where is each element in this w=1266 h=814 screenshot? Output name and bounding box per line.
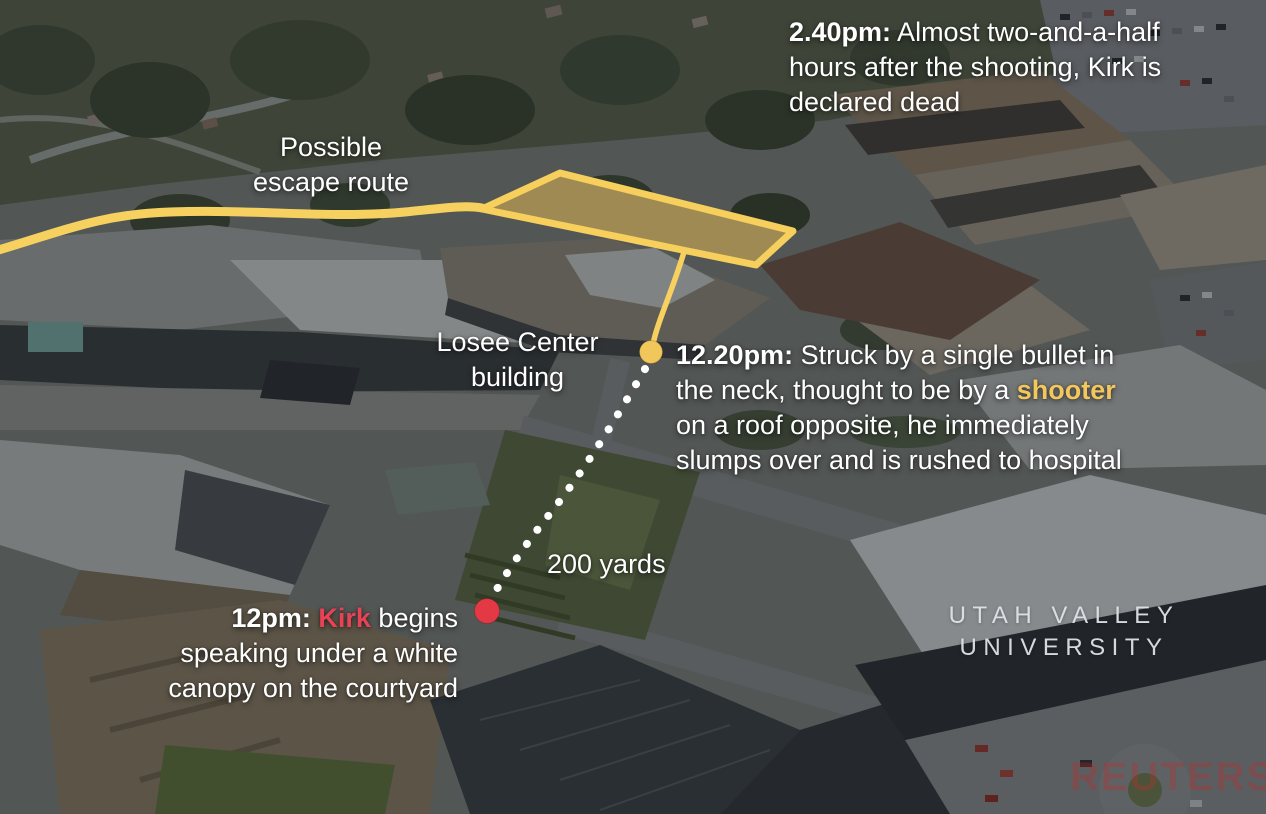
note-line: hours after the shooting, Kirk is (789, 50, 1239, 85)
label-line: building (395, 360, 640, 395)
event-shooting-note: 12.20pm: Struck by a single bullet in th… (676, 338, 1186, 478)
kirk-position-marker (475, 599, 500, 624)
label-line: UNIVERSITY (930, 632, 1198, 664)
annotated-aerial-map: 2.40pm: Almost two-and-a-half hours afte… (0, 0, 1266, 814)
note-line: speaking under a white (100, 636, 458, 671)
shooter-highlight-text: shooter (1017, 375, 1116, 405)
label-line: UTAH VALLEY (930, 600, 1198, 632)
note-line: 12.20pm: Struck by a single bullet in (676, 338, 1186, 373)
note-line: 12pm: Kirk begins (100, 601, 458, 636)
event-time: 12.20pm: (676, 340, 793, 370)
watermark: REUTERS (1070, 760, 1266, 795)
note-line: on a roof opposite, he immediately (676, 408, 1186, 443)
shooter-position-marker (640, 341, 663, 364)
note-line: canopy on the courtyard (100, 671, 458, 706)
note-line: slumps over and is rushed to hospital (676, 443, 1186, 478)
event-time: 12pm: (231, 603, 318, 633)
label-line: Losee Center (395, 325, 640, 360)
label-line: escape route (206, 165, 456, 200)
event-declared-dead-note: 2.40pm: Almost two-and-a-half hours afte… (789, 15, 1239, 120)
university-name-label: UTAH VALLEY UNIVERSITY (930, 600, 1198, 664)
losee-center-label: Losee Center building (395, 325, 640, 395)
label-line: Possible (206, 130, 456, 165)
distance-label: 200 yards (547, 547, 666, 582)
kirk-highlight-text: Kirk (318, 603, 371, 633)
event-speech-note: 12pm: Kirk begins speaking under a white… (100, 601, 458, 706)
event-time: 2.40pm: (789, 17, 891, 47)
note-line: 2.40pm: Almost two-and-a-half (789, 15, 1239, 50)
note-line: the neck, thought to be by a shooter (676, 373, 1186, 408)
escape-route-label: Possible escape route (206, 130, 456, 200)
note-line: declared dead (789, 85, 1239, 120)
